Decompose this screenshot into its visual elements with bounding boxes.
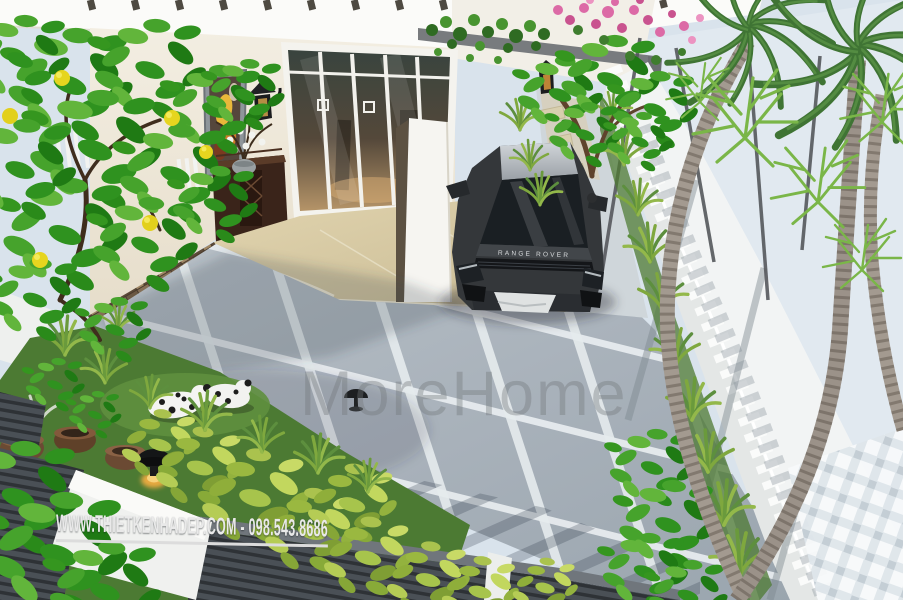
render-scene: RANGE ROVER: [0, 0, 903, 600]
watermark-text: MoreHome: [300, 358, 628, 430]
footer-website-text: WWW.THIETKENHADEP.COM - 098.543.8686: [56, 510, 328, 547]
porch-column: [404, 118, 451, 302]
scene-image: RANGE ROVER: [0, 0, 903, 600]
